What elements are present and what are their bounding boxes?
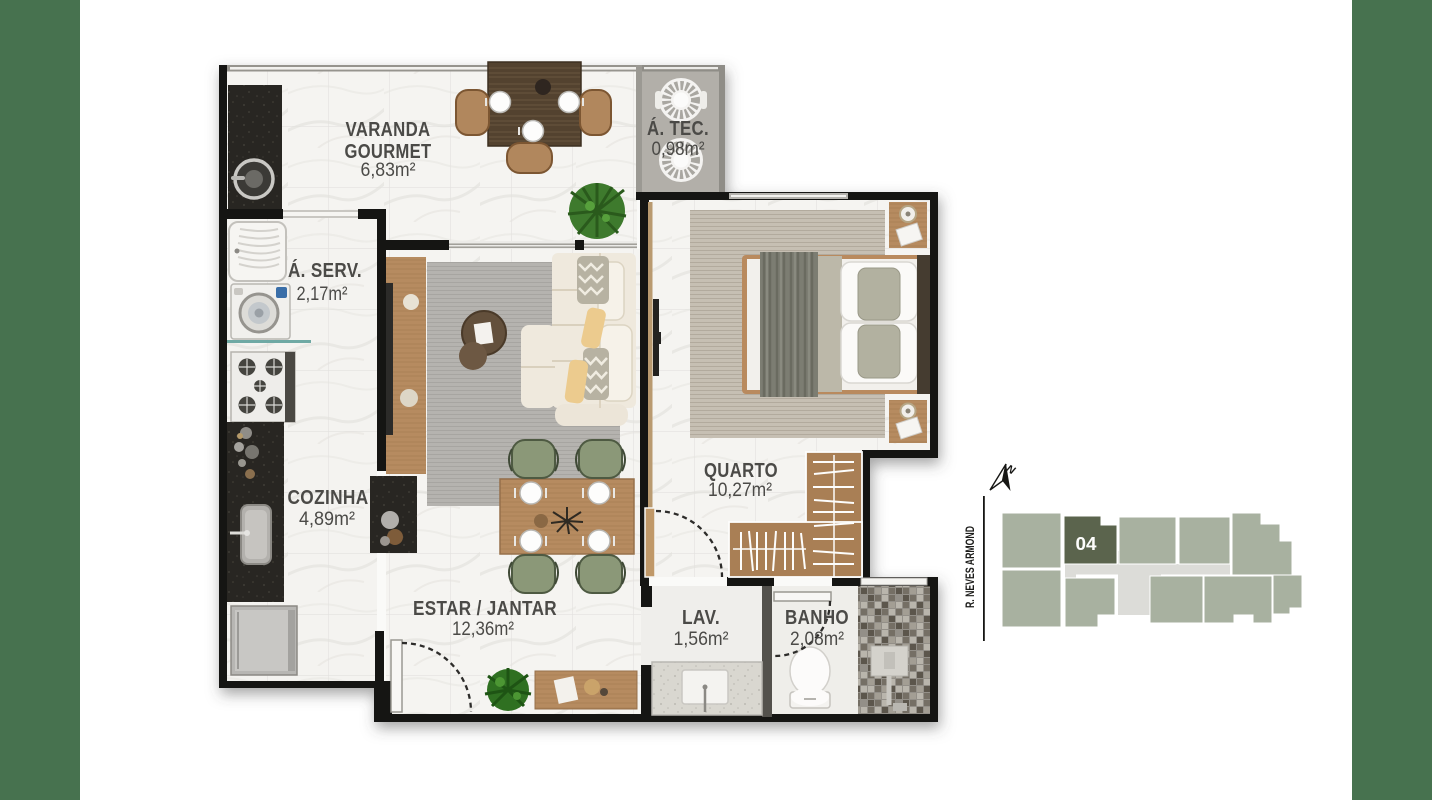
svg-text:2,17m²: 2,17m² <box>297 284 348 305</box>
svg-text:6,83m²: 6,83m² <box>361 160 416 181</box>
svg-text:0,98m²: 0,98m² <box>652 139 705 160</box>
svg-text:BANHO: BANHO <box>785 607 849 629</box>
svg-text:2,08m²: 2,08m² <box>790 629 844 650</box>
svg-text:4,89m²: 4,89m² <box>299 509 355 530</box>
svg-text:Á. TEC.: Á. TEC. <box>647 117 709 140</box>
svg-text:1,56m²: 1,56m² <box>674 629 729 650</box>
svg-text:LAV.: LAV. <box>682 607 720 629</box>
svg-text:QUARTO: QUARTO <box>704 460 778 482</box>
svg-text:R. NEVES ARMOND: R. NEVES ARMOND <box>965 526 977 608</box>
svg-text:VARANDA: VARANDA <box>346 119 431 141</box>
svg-text:ESTAR / JANTAR: ESTAR / JANTAR <box>413 598 557 620</box>
svg-text:Á. SERV.: Á. SERV. <box>288 259 362 282</box>
svg-text:COZINHA: COZINHA <box>288 487 369 509</box>
svg-text:04: 04 <box>1076 534 1097 554</box>
svg-text:12,36m²: 12,36m² <box>452 619 514 640</box>
svg-text:10,27m²: 10,27m² <box>708 480 772 501</box>
